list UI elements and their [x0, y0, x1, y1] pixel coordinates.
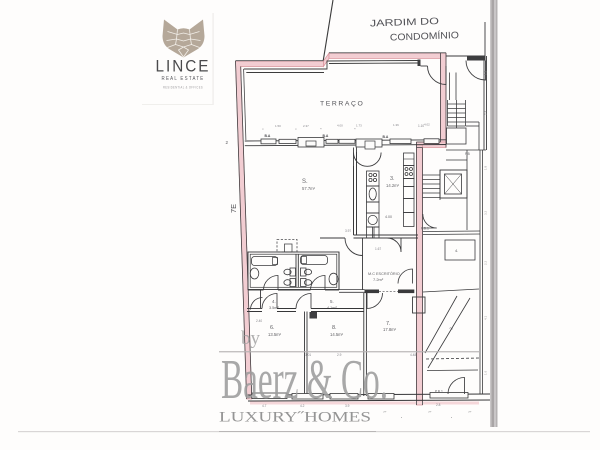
svg-text:2.2: 2.2 [484, 260, 488, 265]
svg-text:2.8: 2.8 [436, 403, 441, 407]
svg-text:14.2m²: 14.2m² [386, 183, 400, 188]
svg-text:B.A: B.A [383, 135, 389, 139]
svg-text:1.2: 1.2 [484, 70, 488, 75]
svg-text:4.1: 4.1 [484, 315, 488, 320]
svg-text:1.36: 1.36 [393, 123, 399, 127]
svg-text:Baerz & Co.: Baerz & Co. [221, 349, 388, 411]
svg-text:4.02: 4.02 [424, 123, 430, 127]
svg-text:B.A: B.A [265, 134, 271, 138]
svg-text:4.00: 4.00 [385, 215, 392, 219]
svg-text:2.4: 2.4 [484, 110, 488, 115]
svg-text:P.B.1: P.B.1 [421, 227, 429, 231]
svg-text:4.00: 4.00 [337, 124, 343, 128]
svg-text:RESIDENTIAL & OFFICES: RESIDENTIAL & OFFICES [163, 86, 203, 90]
svg-text:2.40: 2.40 [256, 319, 262, 323]
svg-text:6.: 6. [270, 325, 275, 331]
svg-text:7.2m²: 7.2m² [373, 277, 384, 282]
svg-text:8.: 8. [332, 325, 337, 331]
svg-text:13.5m²: 13.5m² [268, 332, 282, 337]
svg-text:3.97: 3.97 [345, 229, 351, 233]
svg-text:·: · [450, 412, 453, 422]
svg-text:7E: 7E [229, 204, 238, 213]
svg-text:14.5m²: 14.5m² [330, 332, 344, 337]
svg-text:3.: 3. [390, 176, 395, 182]
svg-text:·: · [400, 412, 403, 422]
svg-text:P.B.1: P.B.1 [435, 390, 443, 394]
svg-text:S.: S. [302, 179, 308, 185]
svg-text:×: × [320, 127, 322, 131]
svg-text:LUXURY˝HOMES: LUXURY˝HOMES [219, 410, 371, 426]
svg-text:1.6: 1.6 [484, 370, 488, 375]
svg-text:1.67: 1.67 [375, 247, 381, 251]
svg-text:57.7m²: 57.7m² [302, 186, 316, 191]
svg-text:LINCE: LINCE [156, 57, 211, 76]
svg-text:×: × [295, 127, 297, 131]
svg-text:4.48: 4.48 [410, 353, 416, 357]
svg-text:4.: 4. [455, 248, 458, 253]
svg-text:P.B: P.B [465, 152, 470, 156]
svg-text:1.8: 1.8 [484, 165, 488, 170]
svg-text:M.C ESCRITÓRIO: M.C ESCRITÓRIO [368, 271, 400, 276]
svg-text:2.37: 2.37 [303, 124, 309, 128]
svg-text:by: by [241, 328, 261, 349]
svg-text:TERRAÇO: TERRAÇO [320, 101, 364, 108]
svg-text:×: × [354, 127, 356, 131]
svg-text:3.2: 3.2 [484, 210, 488, 215]
svg-text:5.: 5. [330, 299, 334, 304]
svg-text:17.8m²: 17.8m² [383, 327, 397, 332]
svg-text:×: × [262, 127, 264, 131]
svg-text:REAL ESTATE: REAL ESTATE [162, 76, 205, 82]
svg-text:4.: 4. [272, 299, 276, 304]
svg-text:1.50: 1.50 [275, 124, 281, 128]
svg-text:1.10: 1.10 [418, 124, 424, 128]
svg-text:1.73: 1.73 [356, 124, 362, 128]
